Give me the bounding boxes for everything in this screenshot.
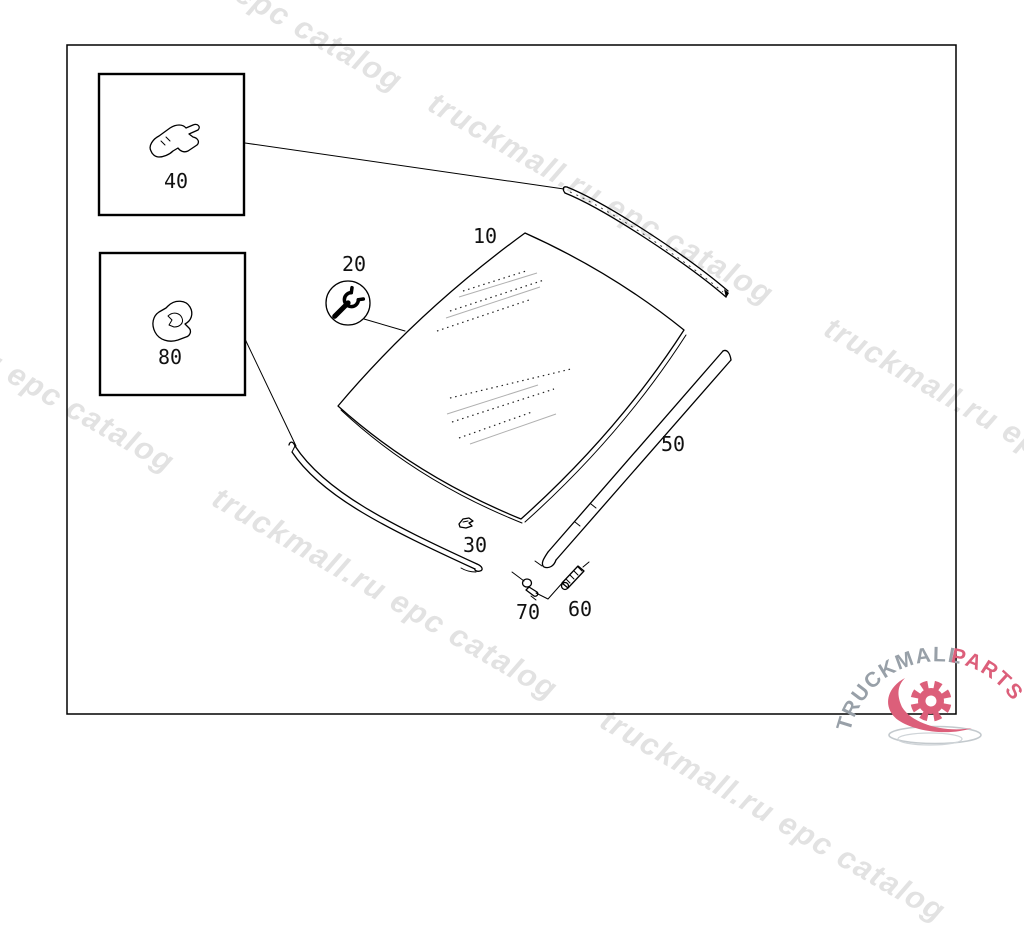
detail-box-part-40: 40 <box>99 74 244 215</box>
parts-diagram: 40 80 10 20 <box>0 0 1024 750</box>
screw-60: 60 <box>562 562 593 621</box>
clip-40-icon <box>150 124 199 157</box>
windshield-glass: 10 <box>338 224 686 523</box>
clip-80-icon <box>153 301 192 341</box>
leader-line-40 <box>245 143 564 189</box>
stop-70: 70 <box>512 572 540 624</box>
top-moulding-strip <box>563 187 729 298</box>
part-label-40: 40 <box>164 169 188 193</box>
diagram-border <box>67 45 956 714</box>
wrench-note: 20 <box>326 252 405 331</box>
leader-line-60 <box>536 581 564 599</box>
leader-line-80 <box>245 339 296 446</box>
part-label-80: 80 <box>158 345 182 369</box>
part-label-50: 50 <box>661 432 685 456</box>
part-label-60: 60 <box>568 597 592 621</box>
clip-30: 30 <box>459 518 487 557</box>
leader-line-20 <box>364 319 405 331</box>
part-label-30: 30 <box>463 533 487 557</box>
leader-line-70 <box>512 572 524 581</box>
part-label-70: 70 <box>516 600 540 624</box>
logo-brand-secondary: PARTS <box>949 644 1024 705</box>
left-moulding-strip <box>289 442 482 572</box>
detail-box-part-80: 80 <box>100 253 245 395</box>
shop-logo: TRUCKMALL PARTS <box>833 643 1024 745</box>
part-label-20: 20 <box>342 252 366 276</box>
wrench-icon <box>329 288 363 322</box>
part-label-10: 10 <box>473 224 497 248</box>
right-moulding-strip: 50 <box>535 350 731 567</box>
